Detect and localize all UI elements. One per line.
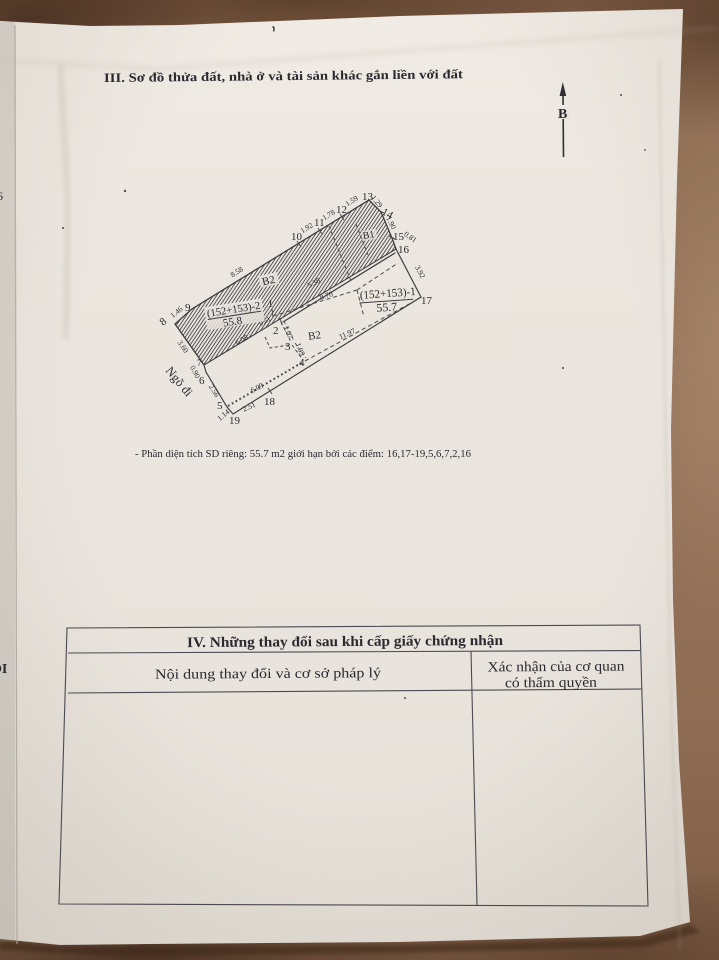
svg-text:ỌI: ỌI xyxy=(0,662,7,677)
svg-text:Xác nhận của cơ quan: Xác nhận của cơ quan xyxy=(487,659,624,676)
svg-text:4: 4 xyxy=(299,357,305,369)
svg-text:18: 18 xyxy=(264,396,276,408)
svg-text:6: 6 xyxy=(0,189,3,203)
svg-text:- Phần diện tích SD riêng: 55.: - Phần diện tích SD riêng: 55.7 m2 giới … xyxy=(135,448,471,460)
svg-text:B1: B1 xyxy=(362,229,375,242)
svg-text:có thẩm quyền: có thẩm quyền xyxy=(505,675,597,692)
svg-text:3: 3 xyxy=(285,341,291,353)
svg-text:19: 19 xyxy=(229,415,241,427)
svg-text:9: 9 xyxy=(185,302,191,314)
svg-text:B2: B2 xyxy=(307,329,321,343)
svg-text:16: 16 xyxy=(398,244,410,256)
svg-text:B: B xyxy=(558,107,567,122)
svg-text:12: 12 xyxy=(336,204,347,216)
svg-text:2: 2 xyxy=(273,325,279,337)
svg-text:1: 1 xyxy=(268,299,273,310)
svg-text:IV. Những thay đổi sau khi cấp: IV. Những thay đổi sau khi cấp giấy chứn… xyxy=(187,633,503,651)
svg-text:Nội dung thay đổi và cơ sở phá: Nội dung thay đổi và cơ sở pháp lý xyxy=(155,666,381,683)
svg-text:17: 17 xyxy=(421,295,433,307)
svg-text:55.7: 55.7 xyxy=(376,299,398,314)
